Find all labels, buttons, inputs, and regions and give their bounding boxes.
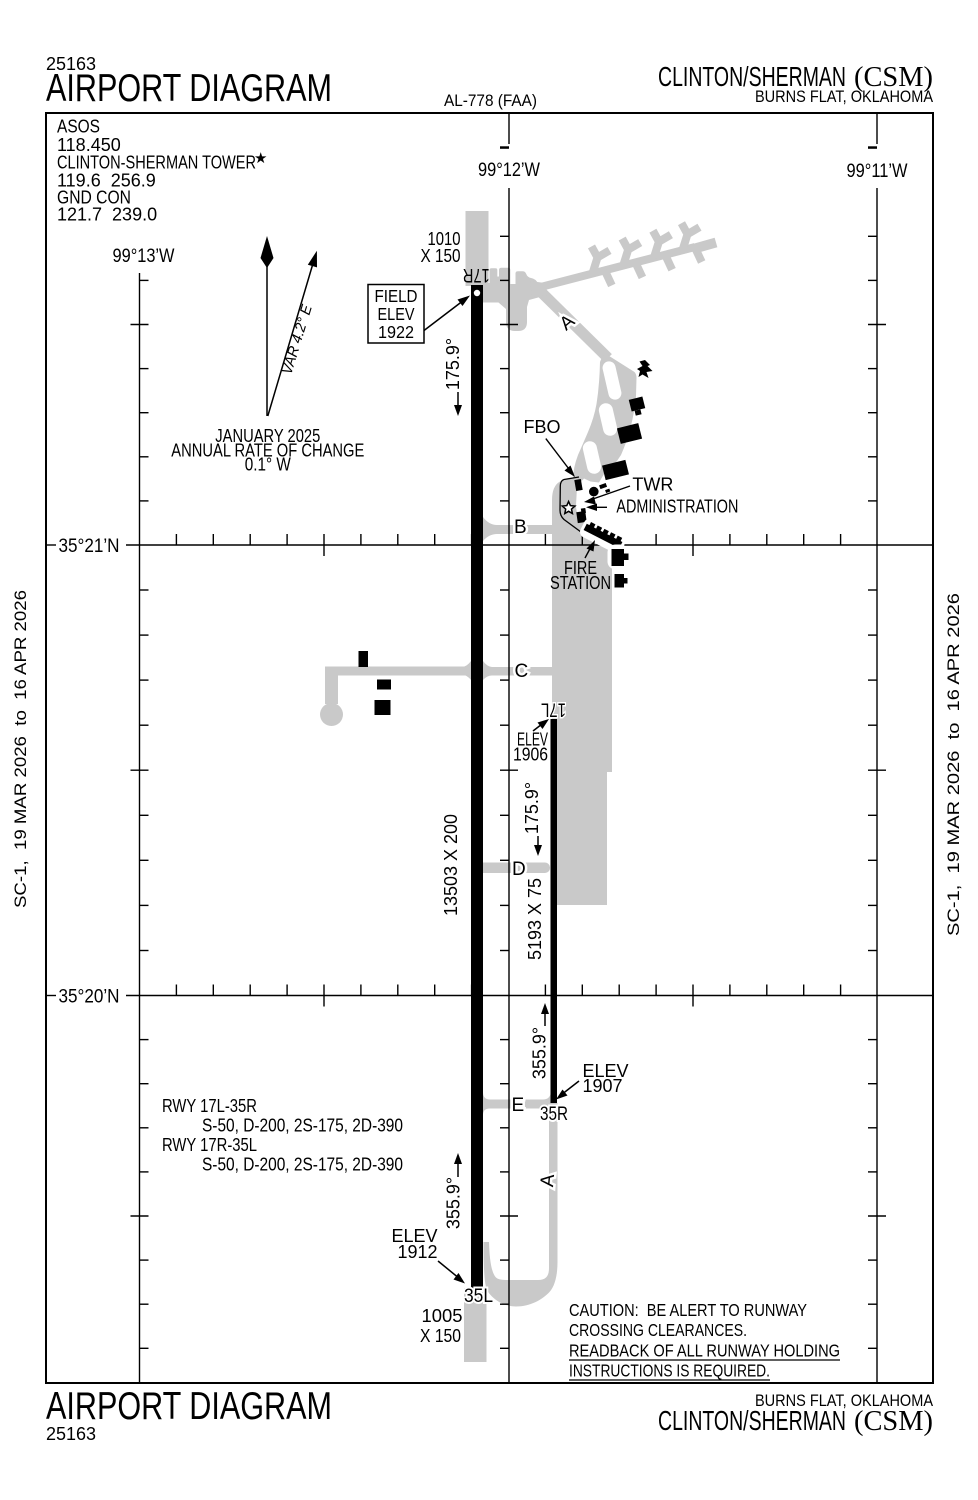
- svg-text:S-50, D-200, 2S-175, 2D-390: S-50, D-200, 2S-175, 2D-390: [202, 1155, 403, 1175]
- svg-text:99°12’W: 99°12’W: [478, 160, 540, 181]
- svg-text:1005: 1005: [422, 1306, 463, 1326]
- svg-text:STATION: STATION: [550, 573, 611, 593]
- svg-text:A: A: [537, 1173, 559, 1188]
- svg-text:(CSM): (CSM): [854, 1406, 933, 1437]
- svg-text:99°13’W: 99°13’W: [113, 246, 175, 267]
- svg-text:X 150: X 150: [421, 246, 461, 266]
- svg-text:TWR: TWR: [632, 475, 673, 495]
- svg-text:AIRPORT DIAGRAM: AIRPORT DIAGRAM: [46, 67, 332, 110]
- svg-text:FIELD: FIELD: [375, 286, 418, 306]
- svg-text:175.9°: 175.9°: [443, 338, 463, 390]
- svg-text:17L: 17L: [541, 699, 566, 720]
- svg-text:35R: 35R: [540, 1104, 568, 1125]
- svg-text:ASOS: ASOS: [57, 117, 100, 137]
- svg-text:CLINTON/SHERMAN: CLINTON/SHERMAN: [658, 1405, 846, 1436]
- svg-text:AL-778 (FAA): AL-778 (FAA): [444, 91, 537, 110]
- svg-text:INSTRUCTIONS IS REQUIRED.: INSTRUCTIONS IS REQUIRED.: [569, 1361, 770, 1381]
- svg-text:RWY 17R-35L: RWY 17R-35L: [162, 1135, 257, 1155]
- svg-text:99°11’W: 99°11’W: [847, 161, 908, 182]
- svg-text:355.9°: 355.9°: [444, 1177, 464, 1229]
- svg-text:175.9°: 175.9°: [522, 782, 542, 834]
- svg-text:X 150: X 150: [420, 1326, 461, 1346]
- svg-text:SC-1, 19 MAR 2026 to 16 APR: SC-1, 19 MAR 2026 to 16 APR 2026: [11, 590, 30, 908]
- svg-text:ADMINISTRATION: ADMINISTRATION: [616, 497, 738, 517]
- svg-text:SC-1, 19 MAR 2026 to 16 APR: SC-1, 19 MAR 2026 to 16 APR 2026: [944, 593, 963, 936]
- svg-text:0.1° W: 0.1° W: [245, 455, 291, 475]
- svg-text:13503 X 200: 13503 X 200: [441, 814, 461, 916]
- svg-text:RWY 17L-35R: RWY 17L-35R: [162, 1096, 257, 1116]
- svg-text:FBO: FBO: [524, 417, 561, 437]
- svg-text:CROSSING CLEARANCES.: CROSSING CLEARANCES.: [569, 1320, 747, 1340]
- svg-text:1912: 1912: [397, 1242, 437, 1262]
- svg-text:25163: 25163: [46, 1424, 96, 1444]
- svg-text:B: B: [514, 517, 527, 538]
- svg-text:1906: 1906: [513, 745, 548, 765]
- svg-text:★: ★: [254, 150, 267, 167]
- svg-text:5193 X 75: 5193 X 75: [525, 878, 545, 960]
- svg-text:121.7 239.0: 121.7 239.0: [57, 205, 157, 225]
- svg-text:35°20’N: 35°20’N: [59, 987, 120, 1008]
- svg-text:17R: 17R: [463, 264, 490, 285]
- svg-text:CAUTION: BE ALERT TO RUNWAY: CAUTION: BE ALERT TO RUNWAY: [569, 1300, 807, 1320]
- svg-text:C: C: [515, 661, 529, 682]
- svg-text:355.9°: 355.9°: [530, 1027, 550, 1079]
- svg-text:35°21’N: 35°21’N: [59, 536, 120, 557]
- svg-text:35L: 35L: [464, 1286, 493, 1307]
- svg-text:AIRPORT DIAGRAM: AIRPORT DIAGRAM: [46, 1385, 332, 1428]
- svg-text:1922: 1922: [378, 322, 414, 342]
- svg-text:BURNS FLAT, OKLAHOMA: BURNS FLAT, OKLAHOMA: [755, 87, 934, 106]
- svg-text:D: D: [512, 859, 526, 880]
- svg-text:READBACK OF ALL RUNWAY HOLDING: READBACK OF ALL RUNWAY HOLDING: [569, 1341, 840, 1361]
- svg-text:S-50, D-200, 2S-175, 2D-390: S-50, D-200, 2S-175, 2D-390: [202, 1116, 403, 1136]
- svg-text:ELEV: ELEV: [378, 304, 415, 324]
- svg-text:1907: 1907: [583, 1076, 623, 1096]
- svg-text:E: E: [512, 1095, 525, 1116]
